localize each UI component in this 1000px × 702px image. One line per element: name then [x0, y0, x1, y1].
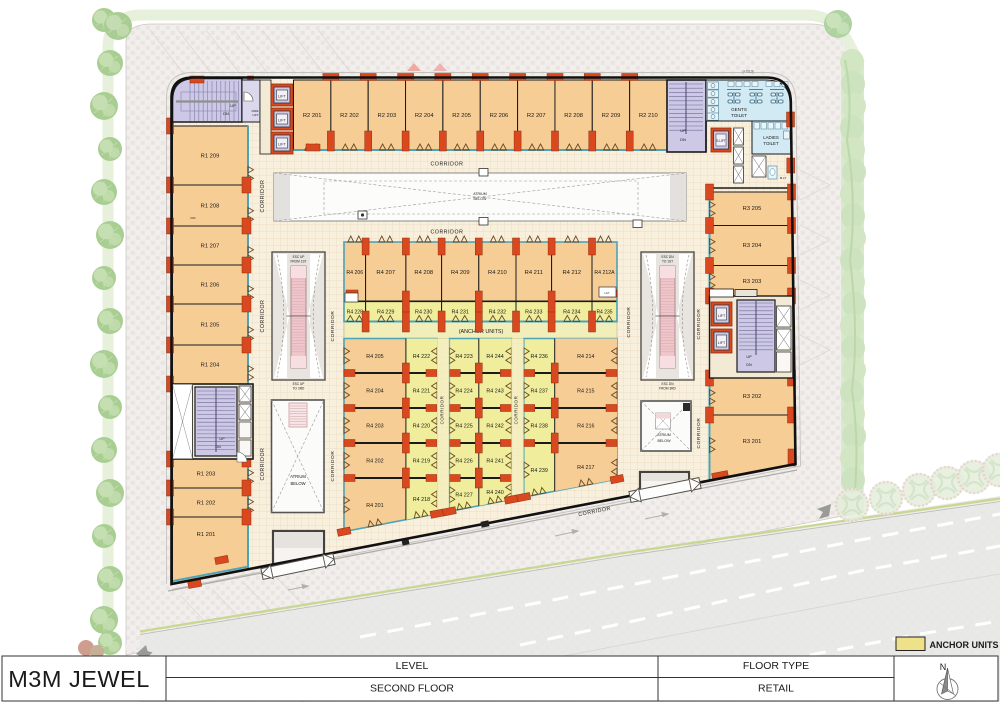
svg-text:R4 215: R4 215	[577, 389, 594, 395]
svg-text:R4 228: R4 228	[347, 310, 363, 316]
svg-text:R4 232: R4 232	[489, 310, 506, 316]
svg-text:R3 201: R3 201	[743, 439, 762, 445]
svg-text:CORRIDOR: CORRIDOR	[330, 311, 336, 342]
svg-text:R4 237: R4 237	[531, 389, 548, 395]
svg-text:UP: UP	[746, 355, 752, 359]
svg-text:[+7010]: [+7010]	[743, 70, 754, 74]
svg-text:GENTS: GENTS	[731, 107, 747, 112]
svg-text:CORRIDOR: CORRIDOR	[430, 162, 463, 168]
svg-text:R4 230: R4 230	[415, 310, 432, 316]
svg-text:N: N	[940, 662, 947, 672]
svg-text:R4 219: R4 219	[413, 459, 430, 465]
svg-text:LIFT: LIFT	[278, 143, 286, 147]
svg-text:R4 238: R4 238	[531, 424, 548, 430]
svg-text:R4 220: R4 220	[413, 424, 430, 430]
svg-text:DN: DN	[746, 363, 752, 367]
svg-text:R4 240: R4 240	[486, 490, 503, 496]
svg-text:R4 234: R4 234	[563, 310, 580, 316]
svg-text:R4 217: R4 217	[577, 465, 594, 471]
svg-text:R4 236: R4 236	[531, 354, 548, 360]
svg-text:R2 208: R2 208	[564, 113, 583, 119]
svg-text:R4 221: R4 221	[413, 389, 430, 395]
svg-text:DIS: DIS	[190, 216, 195, 220]
svg-text:LIFT: LIFT	[718, 341, 726, 345]
svg-text:LEVEL: LEVEL	[396, 660, 429, 672]
svg-text:R2 201: R2 201	[303, 113, 322, 119]
svg-text:CORRIDOR: CORRIDOR	[696, 418, 702, 449]
svg-text:R4 216: R4 216	[577, 424, 594, 430]
svg-text:R4 204: R4 204	[366, 389, 383, 395]
svg-text:R4 201: R4 201	[366, 503, 383, 509]
svg-text:R1 208: R1 208	[201, 204, 220, 210]
svg-text:R3 202: R3 202	[743, 394, 762, 400]
svg-text:R4 202: R4 202	[366, 459, 383, 465]
svg-text:R2 209: R2 209	[602, 113, 621, 119]
svg-text:UP: UP	[680, 128, 686, 133]
svg-text:R1 201: R1 201	[197, 532, 216, 538]
svg-text:CORRIDOR: CORRIDOR	[330, 451, 336, 482]
svg-text:R1 206: R1 206	[201, 283, 220, 289]
svg-text:S.LIFT: S.LIFT	[716, 139, 726, 143]
svg-text:CORRIDOR: CORRIDOR	[430, 230, 463, 236]
svg-text:R2 203: R2 203	[378, 113, 397, 119]
svg-text:R1 202: R1 202	[197, 501, 216, 507]
svg-text:CORRIDOR: CORRIDOR	[260, 447, 266, 480]
svg-text:LIFT: LIFT	[278, 119, 286, 123]
svg-text:R2 206: R2 206	[490, 113, 509, 119]
svg-text:LADIES: LADIES	[763, 135, 779, 140]
svg-text:R4 233: R4 233	[525, 310, 542, 316]
svg-text:R3 204: R3 204	[743, 243, 762, 249]
svg-text:DN: DN	[223, 111, 229, 116]
svg-text:TO 3RD: TO 3RD	[293, 387, 305, 391]
svg-text:CORRIDOR: CORRIDOR	[626, 307, 632, 338]
svg-text:R4 222: R4 222	[413, 354, 430, 360]
svg-text:DN: DN	[680, 137, 686, 142]
svg-text:R4 227: R4 227	[455, 493, 472, 499]
svg-text:R4 214: R4 214	[577, 354, 594, 360]
svg-text:UP: UP	[230, 103, 236, 108]
svg-text:R4 231: R4 231	[452, 310, 469, 316]
svg-text:R4 242: R4 242	[486, 424, 503, 430]
svg-text:ESC DN: ESC DN	[661, 382, 674, 386]
svg-text:ESC UP: ESC UP	[293, 382, 305, 386]
svg-text:R4 224: R4 224	[455, 389, 472, 395]
svg-text:ATRIUM: ATRIUM	[657, 433, 671, 437]
svg-text:CORRIDOR: CORRIDOR	[440, 396, 445, 425]
svg-text:RETAIL: RETAIL	[758, 683, 794, 695]
svg-text:FLOOR TYPE: FLOOR TYPE	[743, 660, 809, 672]
svg-text:DN: DN	[215, 445, 221, 449]
svg-text:R2 204: R2 204	[415, 113, 434, 119]
svg-text:FROM 1ST: FROM 1ST	[290, 260, 306, 264]
svg-text:R4 206: R4 206	[346, 270, 363, 276]
svg-text:R1 205: R1 205	[201, 323, 220, 329]
svg-text:R4 241: R4 241	[486, 459, 503, 465]
svg-text:R4 239: R4 239	[531, 468, 548, 474]
svg-text:R4 226: R4 226	[455, 459, 472, 465]
svg-text:CORRIDOR: CORRIDOR	[696, 309, 702, 340]
svg-text:R2 207: R2 207	[527, 113, 546, 119]
svg-text:R4 208: R4 208	[414, 270, 433, 276]
svg-text:SECOND FLOOR: SECOND FLOOR	[370, 683, 454, 695]
svg-text:R4 244: R4 244	[486, 354, 503, 360]
svg-text:ESC UP: ESC UP	[293, 255, 305, 259]
svg-text:TOILET: TOILET	[763, 141, 779, 146]
svg-text:R2 202: R2 202	[340, 113, 359, 119]
svg-text:BELOW: BELOW	[658, 439, 672, 443]
svg-text:M.LT: M.LT	[780, 176, 787, 180]
svg-text:UP: UP	[219, 437, 225, 441]
svg-text:R1 207: R1 207	[201, 244, 220, 250]
svg-text:ATRIUM: ATRIUM	[473, 192, 487, 196]
svg-text:R4 225: R4 225	[455, 424, 472, 430]
svg-text:R4 223: R4 223	[455, 354, 472, 360]
svg-text:ESC DN: ESC DN	[661, 255, 674, 259]
svg-text:ATRIUM: ATRIUM	[290, 474, 306, 479]
svg-text:R4 210: R4 210	[488, 270, 507, 276]
svg-text:CORRIDOR: CORRIDOR	[260, 299, 266, 332]
svg-text:BELOW: BELOW	[474, 197, 488, 201]
svg-text:R4 209: R4 209	[451, 270, 470, 276]
svg-text:LIFT: LIFT	[718, 314, 726, 318]
svg-text:R4 203: R4 203	[366, 424, 383, 430]
svg-text:TOILET: TOILET	[731, 113, 747, 118]
svg-text:BELOW: BELOW	[290, 481, 305, 486]
svg-text:R1 204: R1 204	[201, 363, 220, 369]
svg-text:R4 205: R4 205	[366, 354, 383, 360]
svg-text:R3 203: R3 203	[743, 279, 762, 285]
svg-text:R4 207: R4 207	[376, 270, 395, 276]
svg-text:R4 212A: R4 212A	[594, 270, 615, 276]
svg-text:R1 203: R1 203	[197, 472, 216, 478]
svg-text:R2 210: R2 210	[639, 113, 658, 119]
svg-text:CORRIDOR: CORRIDOR	[514, 396, 519, 425]
svg-text:FROM 3RD: FROM 3RD	[659, 387, 676, 391]
svg-text:LGT: LGT	[604, 291, 609, 295]
svg-text:CORRIDOR: CORRIDOR	[260, 179, 266, 212]
svg-text:R1 209: R1 209	[201, 154, 220, 160]
svg-text:R4 212: R4 212	[562, 270, 581, 276]
svg-text:R4 211: R4 211	[525, 270, 543, 276]
svg-text:R4 235: R4 235	[596, 310, 612, 316]
svg-text:R4 218: R4 218	[413, 497, 430, 503]
svg-text:R3 205: R3 205	[743, 206, 762, 212]
svg-text:LIFT: LIFT	[278, 95, 286, 99]
svg-text:R4 243: R4 243	[486, 389, 503, 395]
svg-text:R4 229: R4 229	[377, 310, 394, 316]
svg-text:TO 1ST: TO 1ST	[662, 260, 673, 264]
svg-text:R2 205: R2 205	[452, 113, 471, 119]
svg-text:ANCHOR UNITS: ANCHOR UNITS	[930, 640, 999, 650]
svg-text:M3M JEWEL: M3M JEWEL	[8, 666, 150, 692]
